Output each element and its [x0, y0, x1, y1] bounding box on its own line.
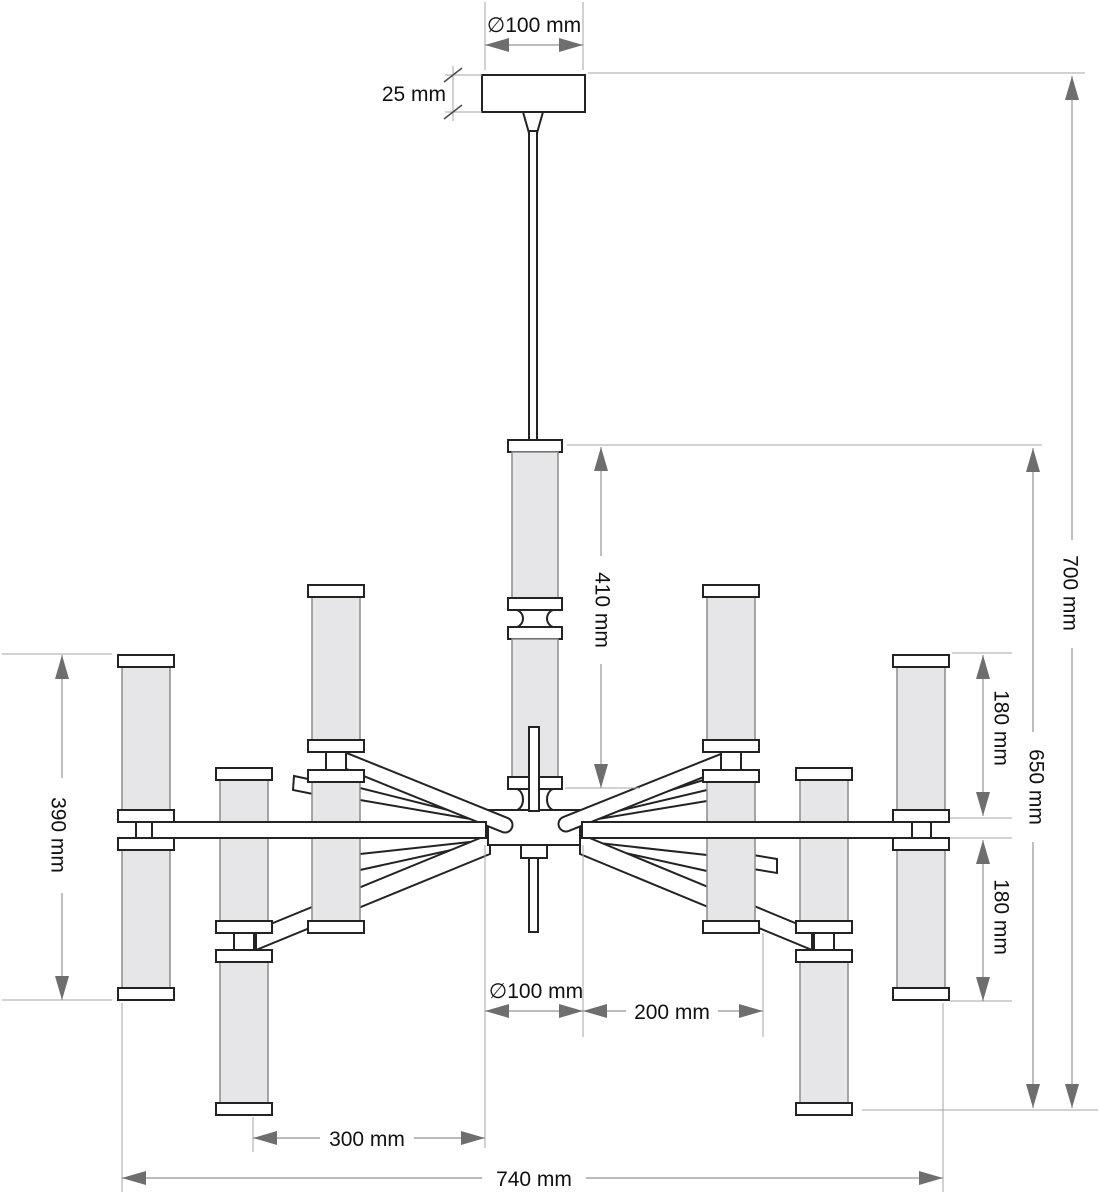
- dim-stem-length: 410 mm: [591, 447, 614, 788]
- dim-lower-shade-height: 180 mm: [976, 840, 1013, 1001]
- dim-overall-height: 700 mm: [1059, 76, 1082, 1108]
- dim-hub-diameter: ∅100 mm: [485, 980, 583, 1018]
- hanging-rod: [523, 112, 543, 442]
- lamp-neck: [326, 752, 346, 770]
- dim-upper-shade-height: 180 mm: [976, 655, 1013, 816]
- lamp-neck: [814, 933, 834, 950]
- arm-stub-right: [753, 855, 777, 873]
- canopy-height-label: 25 mm: [382, 83, 446, 106]
- overall-width-label: 740 mm: [496, 1168, 572, 1191]
- inner-arm-length-label: 200 mm: [634, 1001, 710, 1024]
- outer-shade-pair-height-label: 390 mm: [47, 797, 70, 873]
- chandelier-dimension-drawing: ∅100 mm 25 mm 410 mm 700 mm 650 mm 180 m…: [0, 0, 1100, 1200]
- mid-arm-length-label: 300 mm: [329, 1128, 405, 1151]
- ceiling-canopy: [482, 75, 585, 112]
- arm-lower-left: [256, 834, 490, 950]
- lamp-neck: [911, 822, 931, 838]
- drawing-svg: ∅100 mm 25 mm 410 mm 700 mm 650 mm 180 m…: [0, 0, 1100, 1200]
- dim-canopy-diameter: ∅100 mm: [485, 14, 583, 52]
- body-height-label: 650 mm: [1025, 749, 1048, 825]
- dim-mid-arm-length: 300 mm: [253, 1128, 485, 1151]
- overall-height-label: 700 mm: [1059, 555, 1082, 631]
- lamp-neck: [721, 752, 741, 770]
- stem-length-label: 410 mm: [591, 572, 614, 648]
- dim-outer-shade-pair-height: 390 mm: [47, 655, 70, 1000]
- dim-body-height: 650 mm: [1025, 448, 1048, 1108]
- lamp-neck: [234, 933, 254, 950]
- lower-shade-height-label: 180 mm: [990, 879, 1013, 955]
- canopy-diameter-label: ∅100 mm: [487, 14, 581, 37]
- dim-inner-arm-length: 200 mm: [583, 1001, 763, 1024]
- dim-canopy-height: 25 mm: [382, 68, 462, 119]
- arm-upper-left: [344, 760, 505, 825]
- hub-diameter-label: ∅100 mm: [489, 980, 583, 1003]
- upper-shade-height-label: 180 mm: [990, 690, 1013, 766]
- stem-spool-connector: [517, 610, 553, 627]
- dim-overall-width: 740 mm: [122, 1168, 943, 1191]
- arm-lower-right: [580, 834, 812, 950]
